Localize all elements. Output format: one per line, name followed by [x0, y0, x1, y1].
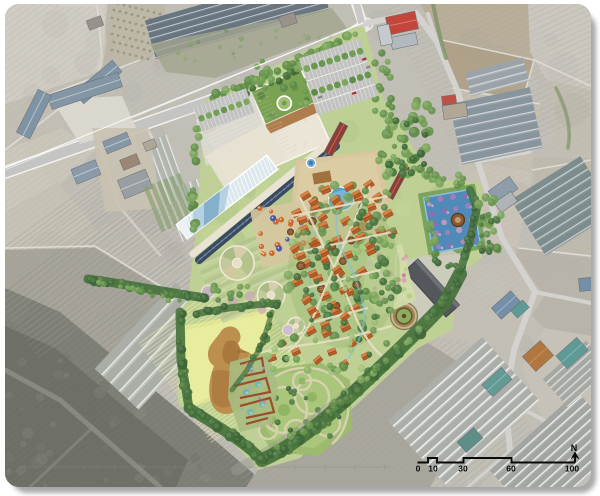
svg-text:10: 10: [428, 464, 438, 474]
svg-text:60: 60: [506, 464, 516, 474]
svg-text:N: N: [571, 443, 578, 453]
svg-text:100: 100: [565, 464, 579, 474]
svg-text:0: 0: [416, 464, 421, 474]
svg-text:30: 30: [458, 464, 468, 474]
